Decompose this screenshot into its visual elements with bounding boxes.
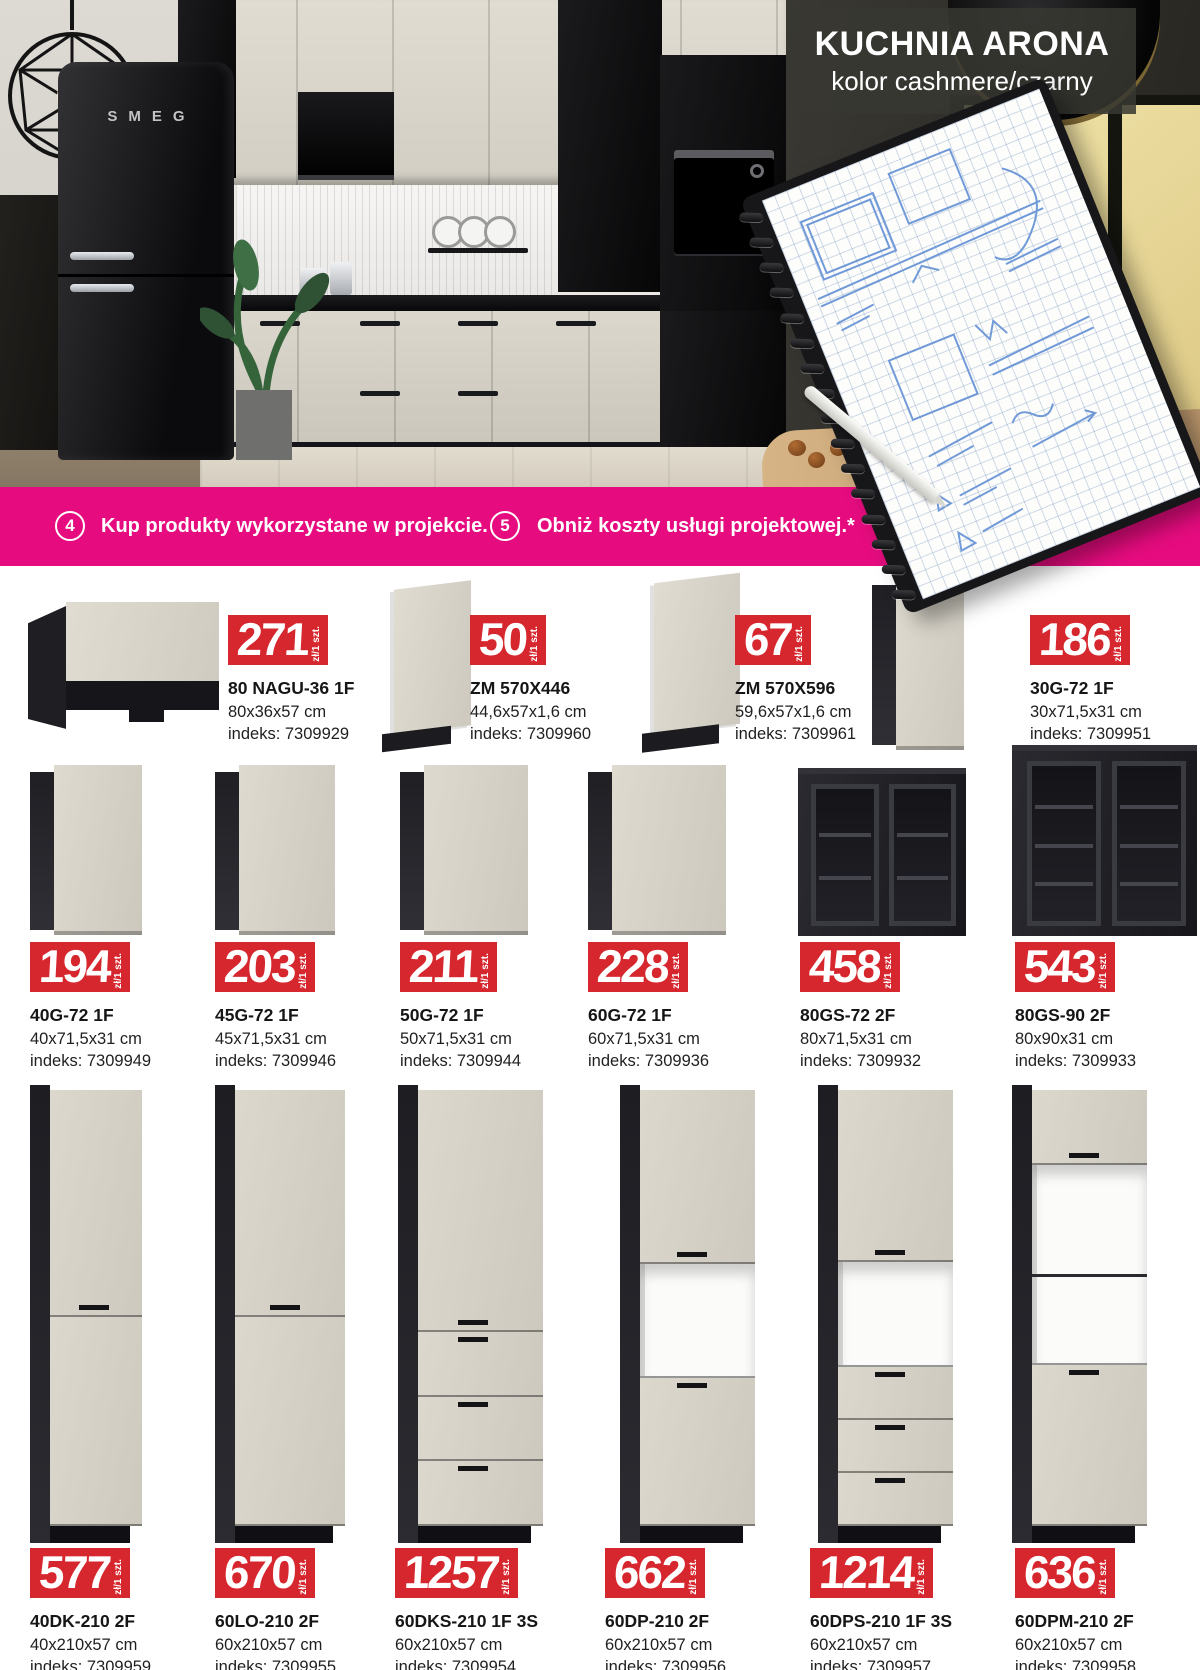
flyer-page: SMEG KUCHNIA ARONA kolor cashmere/czarny… [0,0,1200,1670]
price-value: 186 [1038,618,1111,662]
price-unit: zł/1 szt. [502,1551,512,1595]
drawer [838,1367,953,1420]
product-index: indeks: 7309960 [470,725,640,744]
door [235,1090,345,1317]
niche-divider [1032,1274,1147,1277]
fridge-handle [70,252,134,260]
drawer [418,1397,543,1462]
product-tile: 203zł/1 szt. 45G-72 1F 45x71,5x31 cm ind… [215,942,385,1071]
price-unit: zł/1 szt. [312,618,322,662]
price-unit: zł/1 szt. [689,1551,699,1595]
shelf [1120,844,1178,848]
cabinet-side [818,1085,838,1543]
cabinet-side [398,1085,418,1543]
product-tile: 577zł/1 szt. 40DK-210 2F 40x210x57 cm in… [30,1548,200,1670]
product-name: 80GS-90 2F [1015,1005,1185,1026]
cabinet-bottom [66,681,219,709]
product-tile: 194zł/1 szt. 40G-72 1F 40x71,5x31 cm ind… [30,942,200,1071]
product-tile: 636zł/1 szt. 60DPM-210 2F 60x210x57 cm i… [1015,1548,1185,1670]
price-value: 670 [223,1551,296,1595]
cabinet-side [400,772,424,930]
price-value: 203 [223,945,296,989]
product-image-60dks [398,1085,543,1543]
dark-base-right [660,311,786,456]
price-badge: 211zł/1 szt. [400,942,497,992]
glass-door [1027,761,1101,926]
product-name: 40DK-210 2F [30,1611,200,1632]
step-number-badge: 4 [55,511,85,541]
cabinet-side [30,772,54,930]
spiral-coil [780,313,804,323]
cabinet-handle [270,1305,300,1310]
product-image-80nagu [28,602,223,730]
price-unit: zł/1 szt. [114,945,124,989]
product-index: indeks: 7309958 [1015,1658,1185,1670]
drawer [418,1461,543,1526]
price-badge: 228zł/1 szt. [588,942,688,992]
oven-niche [838,1262,953,1366]
product-tile: 228zł/1 szt. 60G-72 1F 60x71,5x31 cm ind… [588,942,758,1071]
price-value: 636 [1023,1551,1096,1595]
product-image-60g [588,765,726,935]
product-image-40dk [30,1085,142,1543]
product-name: 45G-72 1F [215,1005,385,1026]
product-image-zm446 [388,585,474,750]
product-name: 60DPM-210 2F [1015,1611,1185,1632]
product-image-60dpm [1012,1085,1147,1543]
hero-title-box: KUCHNIA ARONA kolor cashmere/czarny [788,8,1136,114]
spiral-coil [800,363,824,373]
product-image-80gs72 [798,768,966,936]
cabinet-side [30,1085,50,1543]
cabinet-handle [677,1252,707,1257]
product-dimensions: 45x71,5x31 cm [215,1030,385,1049]
plinth [838,1526,941,1543]
oven-dial [750,164,764,178]
page-title: KUCHNIA ARONA [815,25,1110,64]
price-value: 1214 [818,1551,915,1595]
drawer [838,1473,953,1526]
price-badge: 203zł/1 szt. [215,942,315,992]
cabinet-front [239,765,335,935]
product-dimensions: 60x210x57 cm [605,1636,775,1655]
price-value: 211 [408,945,479,989]
plinth [235,1526,333,1543]
price-badge: 458zł/1 szt. [800,942,900,992]
price-unit: zł/1 szt. [114,1551,124,1595]
product-dimensions: 60x210x57 cm [810,1636,1010,1655]
shelf [1035,805,1093,809]
price-value: 662 [613,1551,686,1595]
shelf [897,876,948,880]
price-unit: zł/1 szt. [1114,618,1124,662]
cabinet-front [838,1090,953,1526]
plinth [418,1526,531,1543]
price-badge: 1257zł/1 szt. [395,1548,518,1598]
product-tile: 271 zł/1 szt. 80 NAGU-36 1F 80x36x57 cm … [228,615,398,744]
product-dimensions: 44,6x57x1,6 cm [470,703,640,722]
cabinet-front [1032,1090,1147,1526]
plinth [50,1526,130,1543]
product-index: indeks: 7309956 [605,1658,775,1670]
cabinet-front [235,1090,345,1526]
price-value: 194 [38,945,111,989]
price-badge: 194zł/1 szt. [30,942,130,992]
product-name: 60DKS-210 1F 3S [395,1611,595,1632]
product-dimensions: 60x210x57 cm [215,1636,385,1655]
product-tile: 662zł/1 szt. 60DP-210 2F 60x210x57 cm in… [605,1548,775,1670]
price-badge: 50 zł/1 szt. [470,615,546,665]
cabinet-side [28,606,66,729]
product-index: indeks: 7309955 [215,1658,385,1670]
shelf [1035,844,1093,848]
door [640,1378,755,1526]
product-dimensions: 60x210x57 cm [1015,1636,1185,1655]
cabinet-handle [458,1320,488,1325]
product-tile: 543zł/1 szt. 80GS-90 2F 80x90x31 cm inde… [1015,942,1185,1071]
product-dimensions: 40x210x57 cm [30,1636,200,1655]
product-index: indeks: 7309957 [810,1658,1010,1670]
price-badge: 186 zł/1 szt. [1030,615,1130,665]
cabinet-side [872,585,896,745]
step-label: Obniż koszty usługi projektowej.* [537,515,855,538]
spiral-coil [861,514,885,524]
spiral-coil [871,539,895,549]
product-name: 80GS-72 2F [800,1005,970,1026]
product-name: 80 NAGU-36 1F [228,678,398,699]
price-value: 458 [808,945,881,989]
panel-front [654,573,740,735]
cabinet-front [424,765,528,935]
price-badge: 636zł/1 szt. [1015,1548,1115,1598]
product-dimensions: 80x71,5x31 cm [800,1030,970,1049]
price-value: 228 [596,945,669,989]
cabinet-handle [458,391,498,396]
cabinet-notch [129,710,164,723]
product-name: 50G-72 1F [400,1005,570,1026]
product-index: indeks: 7309932 [800,1052,970,1071]
cabinet-side [215,1085,235,1543]
shelf [1035,882,1093,886]
price-value: 543 [1023,945,1096,989]
cabinet-handle [875,1372,905,1377]
product-name: ZM 570X446 [470,678,640,699]
panel-front [394,580,471,735]
spiral-coil [841,464,865,474]
glass-door [889,784,956,926]
cabinet-side [620,1085,640,1543]
price-unit: zł/1 szt. [530,618,540,662]
product-name: 30G-72 1F [1030,678,1200,699]
panel-base [382,726,451,753]
door [1032,1365,1147,1526]
price-value: 271 [236,618,309,662]
cabinet-side [215,772,239,930]
price-unit: zł/1 szt. [917,1551,927,1595]
plant [200,235,330,460]
product-index: indeks: 7309959 [30,1658,200,1670]
product-image-50g [400,765,528,935]
drawer [418,1332,543,1397]
cabinet-handle [360,321,400,326]
product-index: indeks: 7309944 [400,1052,570,1071]
product-name: 60DPS-210 1F 3S [810,1611,1010,1632]
product-index: indeks: 7309954 [395,1658,595,1670]
door [1032,1090,1147,1165]
product-image-80gs90 [1012,745,1197,936]
page-subtitle: kolor cashmere/czarny [831,66,1093,97]
cabinet-handle [875,1250,905,1255]
product-tile: 1214zł/1 szt. 60DPS-210 1F 3S 60x210x57 … [810,1548,1010,1670]
microwave-niche [1032,1165,1147,1365]
cabinet-front [66,602,219,681]
cabinet-side [1012,1085,1032,1543]
price-unit: zł/1 szt. [481,945,491,989]
product-image-60dp [620,1085,755,1543]
product-tile: 186 zł/1 szt. 30G-72 1F 30x71,5x31 cm in… [1030,615,1200,744]
glass-door [811,784,878,926]
product-index: indeks: 7309936 [588,1052,758,1071]
product-dimensions: 40x71,5x31 cm [30,1030,200,1049]
spiral-coil [831,439,855,449]
shelf [819,833,870,837]
product-tile: 670zł/1 szt. 60LO-210 2F 60x210x57 cm in… [215,1548,385,1670]
cabinet-handle [458,321,498,326]
product-image-40g [30,765,142,935]
shelf [1120,805,1178,809]
plinth [640,1526,743,1543]
tall-black-cabinet-mid [558,0,662,292]
spiral-coil [892,590,916,600]
price-unit: zł/1 szt. [299,945,309,989]
spiral-coil [770,288,794,298]
price-badge: 670zł/1 szt. [215,1548,315,1598]
product-index: indeks: 7309949 [30,1052,200,1071]
price-badge: 1214zł/1 szt. [810,1548,933,1598]
door [235,1317,345,1526]
product-name: 40G-72 1F [30,1005,200,1026]
cabinet-handle [1069,1370,1099,1375]
product-tile: 211zł/1 szt. 50G-72 1F 50x71,5x31 cm ind… [400,942,570,1071]
shelf [897,833,948,837]
spiral-coil [790,338,814,348]
price-value: 50 [478,618,527,662]
product-index: indeks: 7309933 [1015,1052,1185,1071]
product-index: indeks: 7309946 [215,1052,385,1071]
glass-door [1112,761,1186,926]
price-unit: zł/1 szt. [884,945,894,989]
cabinet-handle [79,1305,109,1310]
price-unit: zł/1 szt. [299,1551,309,1595]
product-tile: 1257zł/1 szt. 60DKS-210 1F 3S 60x210x57 … [395,1548,595,1670]
price-value: 577 [38,1551,111,1595]
price-badge: 577zł/1 szt. [30,1548,130,1598]
product-dimensions: 80x36x57 cm [228,703,398,722]
price-badge: 662zł/1 szt. [605,1548,705,1598]
door [50,1317,142,1526]
price-badge: 543zł/1 szt. [1015,942,1115,992]
price-unit: zł/1 szt. [672,945,682,989]
shelf [1120,882,1178,886]
door [50,1090,142,1317]
cooker-hood [298,92,394,180]
door [418,1090,543,1332]
cabinet-front [54,765,142,935]
product-name: 60DP-210 2F [605,1611,775,1632]
price-badge: 67 zł/1 szt. [735,615,811,665]
step-number-badge: 5 [490,511,520,541]
plate [484,216,516,248]
cabinet-front [418,1090,543,1526]
hazelnut [808,452,825,468]
price-value: 67 [743,618,792,662]
product-index: indeks: 7309929 [228,725,398,744]
spiral-coil [851,489,875,499]
price-badge: 271 zł/1 szt. [228,615,328,665]
price-unit: zł/1 szt. [1099,1551,1109,1595]
product-dimensions: 80x90x31 cm [1015,1030,1185,1049]
product-image-60dps [818,1085,953,1543]
shelf [819,876,870,880]
cabinet-handle [458,1337,488,1342]
drawer [838,1420,953,1473]
spiral-coil [760,263,784,273]
cabinet-handle [1069,1153,1099,1158]
fridge-brand-label: SMEG [58,108,234,125]
spiral-coil [749,237,773,247]
cabinet-front [50,1090,142,1526]
product-tile: 458zł/1 szt. 80GS-72 2F 80x71,5x31 cm in… [800,942,970,1071]
price-unit: zł/1 szt. [795,618,805,662]
dish-rack-shelf [428,248,528,253]
product-name: 60G-72 1F [588,1005,758,1026]
price-value: 1257 [403,1551,500,1595]
product-dimensions: 30x71,5x31 cm [1030,703,1200,722]
plinth [1032,1526,1135,1543]
product-dimensions: 60x71,5x31 cm [588,1030,758,1049]
product-image-60lo [215,1085,345,1543]
spiral-coil [739,212,763,222]
cabinet-front [612,765,726,935]
fridge-handle [70,284,134,292]
cabinet-handle [875,1425,905,1430]
oven-niche [640,1264,755,1378]
product-dimensions: 50x71,5x31 cm [400,1030,570,1049]
product-name: 60LO-210 2F [215,1611,385,1632]
cabinet-handle [875,1478,905,1483]
product-image-zm596 [648,578,744,750]
product-index: indeks: 7309951 [1030,725,1200,744]
product-image-45g [215,765,335,935]
step-label: Kup produkty wykorzystane w projekcie. [101,515,488,538]
pot [330,262,352,295]
product-tile: 50 zł/1 szt. ZM 570X446 44,6x57x1,6 cm i… [470,615,640,744]
cabinet-handle [677,1383,707,1388]
door [640,1090,755,1264]
cabinet-handle [458,1466,488,1471]
door [838,1090,953,1262]
cabinet-front [640,1090,755,1526]
cabinet-handle [556,321,596,326]
spiral-coil [882,564,906,574]
cabinet-handle [360,391,400,396]
cabinet-side [588,772,612,930]
cabinet-handle [458,1402,488,1407]
hazelnut [788,440,806,456]
price-unit: zł/1 szt. [1099,945,1109,989]
product-dimensions: 60x210x57 cm [395,1636,595,1655]
